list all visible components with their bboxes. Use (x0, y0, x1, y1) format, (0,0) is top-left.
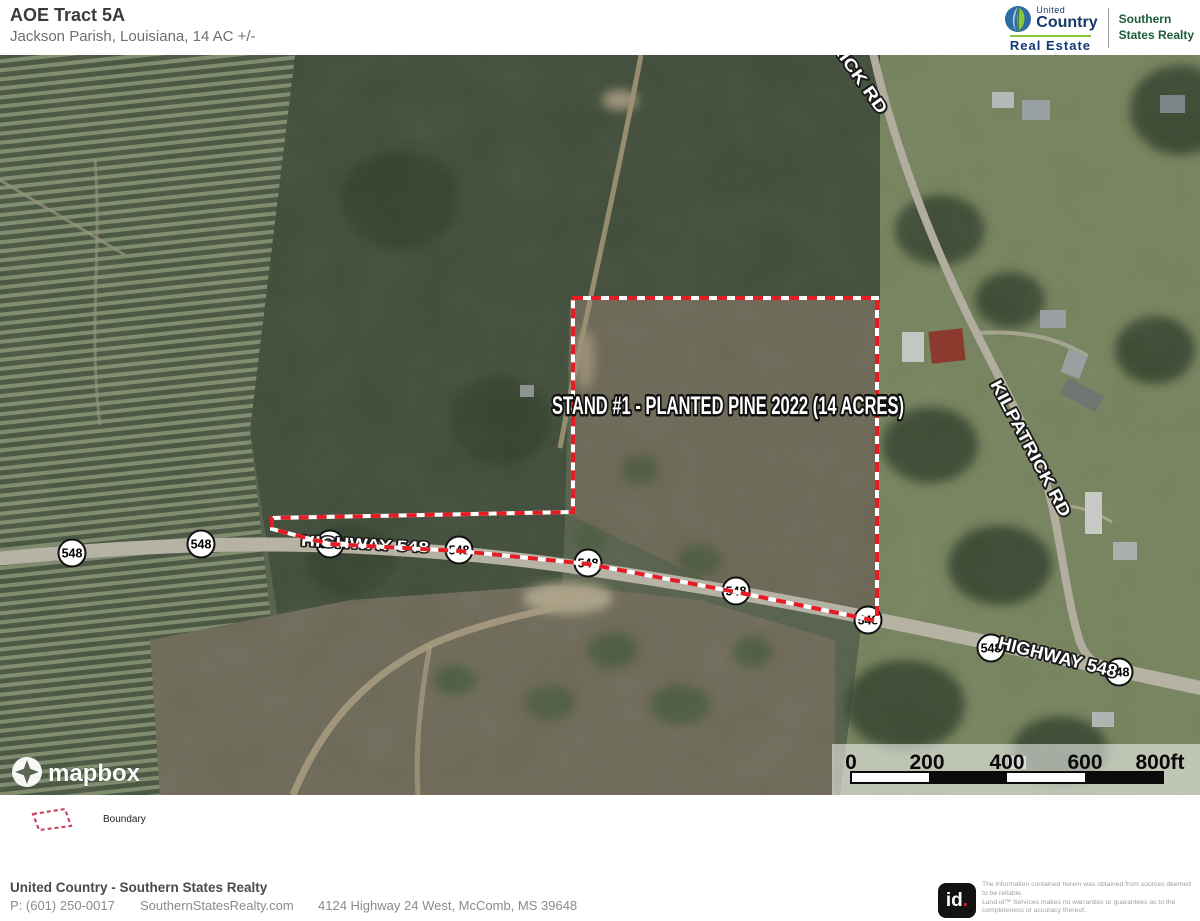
boundary-legend-icon (25, 804, 77, 834)
brand-southern-line1: Southern (1119, 12, 1194, 28)
brand-southern-line2: States Realty (1119, 28, 1194, 44)
route-shield: 548 (188, 531, 215, 558)
united-country-logo: United Country Real Estate (1003, 4, 1097, 53)
scale-tick: 600 (1067, 751, 1102, 774)
brand-logos: United Country Real Estate Southern Stat… (1003, 4, 1194, 52)
footer-company-name: United Country - Southern States Realty (10, 880, 267, 895)
mapbox-wordmark: mapbox (48, 760, 141, 787)
brand-divider (1108, 8, 1109, 48)
svg-text:548: 548 (62, 547, 83, 561)
stand-annotation: STAND #1 - PLANTED PINE 2022 (14 ACRES) (552, 392, 904, 420)
svg-text:548: 548 (191, 538, 212, 552)
scale-bar: 0 200 400 600 800ft (832, 744, 1200, 795)
property-map-page: AOE Tract 5A Jackson Parish, Louisiana, … (0, 0, 1200, 921)
southern-states-realty-logo: Southern States Realty (1119, 12, 1194, 43)
boundary-legend-label: Boundary (103, 814, 146, 825)
scale-tick: 400 (989, 751, 1024, 774)
footer-website-link[interactable]: SouthernStatesRealty.com (140, 898, 294, 913)
aerial-map-image: 548 548 548 548 548 548 548 HIGHWAY 548 … (0, 55, 1200, 795)
legend: Boundary (25, 804, 146, 834)
brand-country-text: Country (1036, 15, 1097, 31)
land-id-logo: id. (938, 883, 976, 918)
page-title: AOE Tract 5A (10, 5, 125, 26)
mapbox-logo[interactable]: mapbox (12, 757, 141, 787)
disclaimer-text: The information contained herein was obt… (982, 881, 1198, 916)
footer-phone: P: (601) 250-0017 (10, 898, 115, 913)
scale-tick: 200 (909, 751, 944, 774)
page-subtitle: Jackson Parish, Louisiana, 14 AC +/- (10, 28, 256, 45)
scale-tick: 800ft (1135, 751, 1184, 774)
footer-address: 4124 Highway 24 West, McComb, MS 39648 (318, 898, 577, 913)
scale-tick: 0 (845, 751, 857, 774)
map-canvas[interactable]: 548 548 548 548 548 548 548 HIGHWAY 548 … (0, 55, 1200, 795)
globe-leaf-icon (1003, 4, 1033, 34)
route-shield: 548 (59, 540, 86, 567)
brand-real-estate-text: Real Estate (1010, 35, 1091, 53)
disclaimer-line-2: Land id™ Services makes no warranties or… (982, 899, 1198, 917)
disclaimer-line-1: The information contained herein was obt… (982, 881, 1198, 899)
